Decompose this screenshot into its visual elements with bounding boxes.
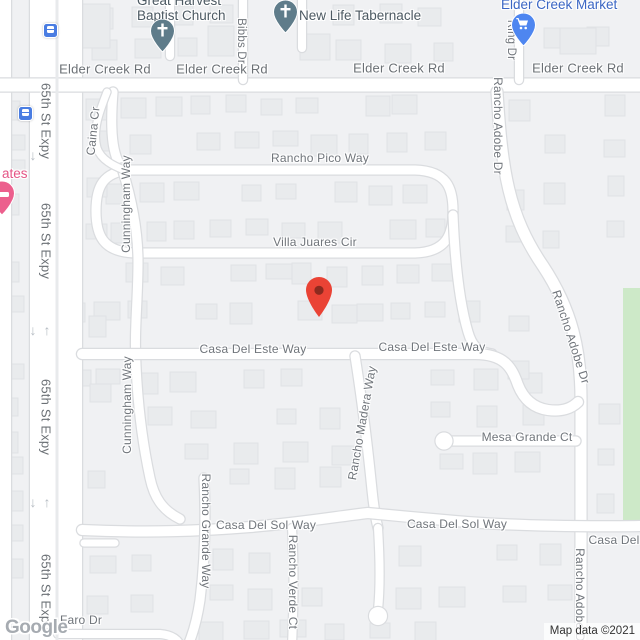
bus-stop-icon-2[interactable]	[18, 106, 33, 121]
bus-stop-icon-1[interactable]	[43, 23, 58, 38]
map-canvas[interactable]: Elder Creek Rd Elder Creek Rd Elder Cree…	[0, 0, 640, 640]
google-logo[interactable]: Google	[5, 617, 67, 639]
destination-marker[interactable]	[305, 276, 333, 318]
worship-pin-icon-2[interactable]	[273, 0, 298, 33]
map-attribution: Map data ©2021	[544, 623, 640, 640]
shopping-pin-icon[interactable]	[511, 13, 536, 46]
map-base-layer	[0, 0, 640, 640]
lodging-pin-icon[interactable]	[0, 181, 15, 215]
poi-label-market[interactable]: Elder Creek Market	[501, 0, 617, 12]
worship-pin-icon-1[interactable]	[150, 19, 175, 52]
poi-label-lodging-partial[interactable]: ates	[2, 166, 28, 181]
poi-label-baptist-church-line1: Great Harvest	[137, 0, 226, 8]
poi-label-tabernacle[interactable]: New Life Tabernacle	[299, 8, 421, 23]
park-area	[623, 288, 640, 532]
